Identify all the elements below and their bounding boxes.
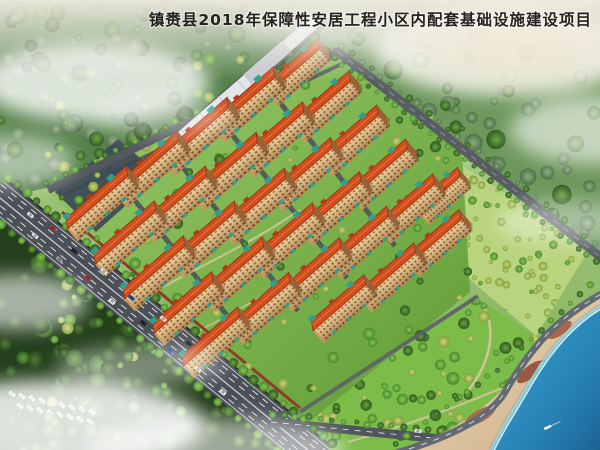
car <box>414 429 421 433</box>
fog-cloud <box>55 345 225 385</box>
rendering-canvas: 镇赉县2018年保障性安居工程小区内配套基础设施建设项目 <box>0 0 600 450</box>
project-title: 镇赉县2018年保障性安居工程小区内配套基础设施建设项目 <box>149 10 592 29</box>
aerial-rendering: 镇赉县2018年保障性安居工程小区内配套基础设施建设项目 <box>0 0 600 450</box>
fog-cloud <box>90 100 230 136</box>
